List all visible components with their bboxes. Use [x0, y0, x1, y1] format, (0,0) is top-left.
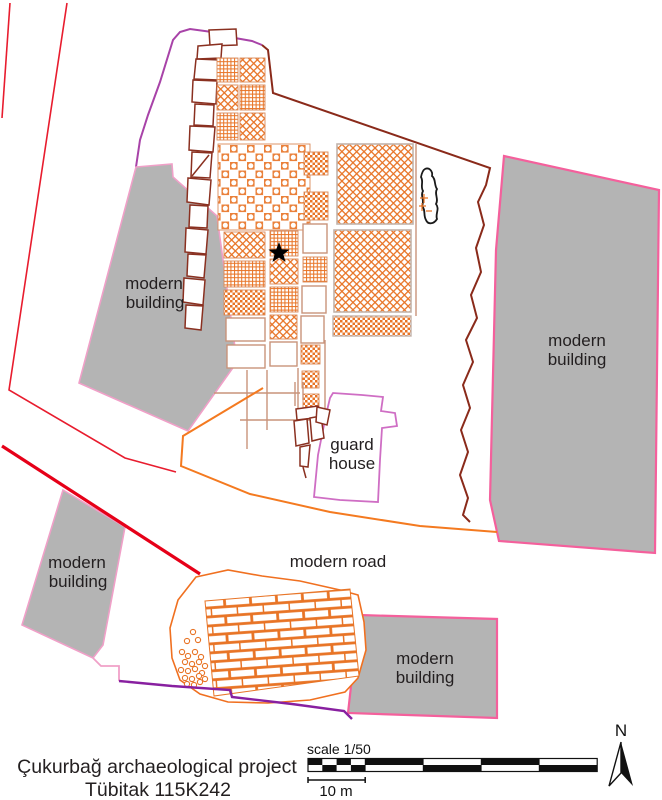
red-line-short — [2, 3, 10, 118]
grid-cell — [270, 342, 297, 366]
site-plan: modern building modern building modern b… — [0, 0, 662, 800]
trench-outline — [189, 205, 208, 228]
project-title: Çukurbağ archaeological project — [17, 756, 297, 778]
guard-house-label: guard — [330, 435, 373, 454]
grid-cell — [226, 318, 265, 341]
grid-block-large — [334, 230, 411, 312]
grid-block-wide — [333, 316, 411, 336]
grid-cell — [224, 290, 265, 315]
mosaic-block — [218, 144, 310, 230]
project-subtitle: Tübitak 115K242 — [85, 779, 231, 800]
scale-distance-label: 10 m — [319, 783, 352, 800]
site-plan-canvas: modern building modern building modern b… — [0, 0, 662, 800]
trench-outline — [300, 445, 310, 467]
title-block: Çukurbağ archaeological project Tübitak … — [17, 756, 297, 800]
grid-cell — [224, 261, 265, 287]
grid-cell — [303, 224, 327, 253]
north-arrow: N — [609, 721, 633, 786]
grid-cell — [301, 316, 324, 343]
north-arrow-icon — [621, 742, 633, 786]
grid-cell — [270, 315, 297, 339]
trench-outline — [192, 80, 217, 104]
trench-outline — [294, 419, 309, 446]
building-b-label: building — [548, 350, 607, 369]
grid-cell — [301, 345, 320, 364]
trench-outline — [189, 126, 215, 152]
guard-house-label: house — [329, 454, 375, 473]
scale-bar-graphic — [308, 759, 597, 772]
tree-feature — [419, 168, 438, 223]
grid-cell — [270, 259, 298, 284]
road-label: modern road — [290, 552, 386, 571]
building-b-label: modern — [548, 331, 606, 350]
boundary-pink-step — [93, 658, 119, 681]
grid-cell — [240, 58, 265, 82]
grid-cell — [224, 232, 265, 258]
grid-cell — [304, 152, 328, 175]
grid-cell — [303, 257, 327, 282]
scale-label: scale 1/50 — [307, 741, 371, 757]
building-a-label: building — [126, 293, 185, 312]
grid-cell — [240, 85, 265, 110]
trench-outline — [183, 278, 205, 305]
excavation-grid — [214, 58, 416, 449]
grid-cell — [217, 113, 238, 140]
building-c-label: building — [49, 572, 108, 591]
grid-cell — [217, 58, 238, 82]
grid-cell — [304, 192, 328, 220]
grid-cell — [302, 286, 326, 313]
trench-outline — [187, 254, 206, 278]
trench-detail-line — [303, 467, 306, 478]
grid-block-large — [337, 144, 413, 224]
building-d-label: modern — [396, 649, 454, 668]
building-c-label: modern — [48, 553, 106, 572]
trench-outline — [194, 59, 220, 80]
building-d-label: building — [396, 668, 455, 687]
grid-cell — [302, 371, 319, 388]
trench-outline — [185, 305, 203, 330]
grid-cell — [227, 345, 265, 368]
north-arrow-icon — [609, 742, 621, 786]
trench-outline — [187, 178, 211, 205]
grid-cell — [270, 287, 298, 312]
trench-outline — [185, 228, 208, 254]
lower-excavation — [170, 570, 366, 703]
trench-outline — [197, 44, 222, 59]
north-label: N — [615, 721, 627, 740]
grid-cell — [217, 85, 238, 110]
trench-outline — [194, 104, 214, 126]
building-a-label: modern — [125, 274, 183, 293]
trench-outline — [209, 29, 237, 46]
grid-cell — [240, 113, 265, 140]
scale-bar: scale 1/50 10 m — [307, 741, 597, 800]
trench-outline — [316, 407, 330, 425]
